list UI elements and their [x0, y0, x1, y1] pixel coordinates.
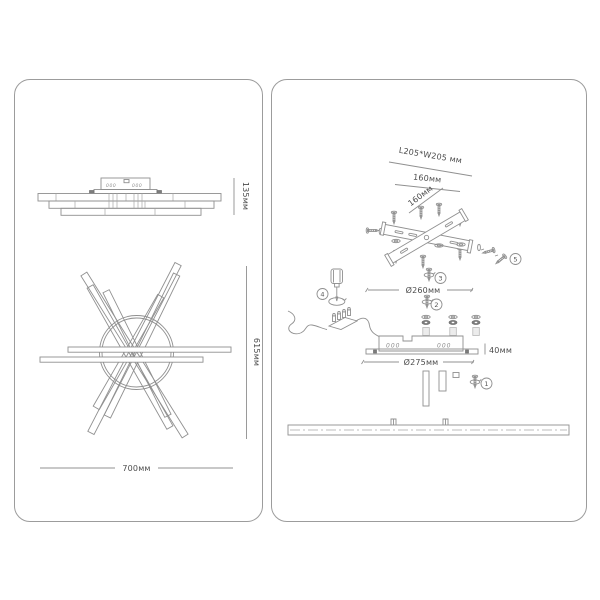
dim-label-plate: L205*W205 мм — [398, 146, 463, 166]
step-number-1: 1 — [484, 380, 488, 388]
side-vents-right: 000 — [132, 183, 142, 189]
mount-plate-side — [94, 190, 157, 194]
screw-step1-icon — [470, 375, 481, 388]
step-number-5: 5 — [513, 255, 517, 263]
rods-drawing: 1 — [288, 371, 569, 435]
dim-label-40: 40мм — [489, 346, 512, 355]
bracket-dimensions: L205*W205 мм 160мм 160мм — [389, 146, 472, 213]
screwdriver-icon — [329, 269, 347, 305]
rod-short — [439, 371, 446, 391]
top-view-drawing: 615мм 700мм — [40, 262, 261, 473]
step-number-2: 2 — [434, 301, 438, 309]
assembly-panel: L205*W205 мм 160мм 160мм — [271, 79, 587, 522]
canopy-drawing: 2 000 000 40мм Ø275мм — [362, 295, 513, 367]
bar-row-2-seams — [75, 201, 185, 208]
dimensions-drawing: 000 000 135мм — [15, 80, 262, 521]
side-screw-right-group — [478, 244, 508, 265]
dim-label-260: Ø260мм — [406, 285, 441, 295]
bar-row-3-seams — [105, 208, 155, 215]
profile-tab-right — [443, 419, 448, 425]
step-number-4: 4 — [320, 290, 324, 298]
studs-row — [423, 328, 480, 336]
bar-row-2 — [49, 201, 214, 208]
bracket-bar-b — [384, 209, 469, 267]
bar-row-1 — [38, 194, 221, 202]
dim-260: Ø260мм — [366, 285, 474, 295]
side-vents-left: 000 — [106, 183, 116, 189]
base-clip-left — [374, 350, 377, 353]
wire-left — [288, 311, 327, 334]
side-view-drawing: 000 000 135мм — [38, 178, 250, 215]
bar-row-1-seams — [56, 194, 173, 202]
dim-label-615: 615мм — [252, 338, 261, 366]
wiring-drawing: 4 — [288, 269, 379, 337]
assembly-drawing: L205*W205 мм 160мм 160мм — [272, 80, 586, 521]
driver-box-connector — [124, 180, 129, 183]
dim-label-135: 135мм — [241, 182, 250, 210]
rod-cap — [453, 373, 459, 378]
profile-tab-left — [391, 419, 396, 425]
dim-label-700: 700мм — [122, 464, 150, 473]
washers-row — [422, 315, 480, 318]
dimensions-panel: 000 000 135мм — [14, 79, 263, 522]
rod-long — [423, 371, 429, 406]
dim-label-275: Ø275мм — [404, 357, 439, 367]
terminal-block — [329, 308, 357, 330]
horizontal-stick-2 — [40, 357, 203, 362]
canopy-vents-left: 000 — [386, 343, 400, 350]
side-screw-left — [366, 228, 382, 235]
base-clip-right — [466, 350, 469, 353]
canopy-vents-right: 000 — [437, 343, 451, 350]
nuts-row — [422, 321, 480, 325]
dim-label-160h: 160мм — [413, 173, 442, 185]
wire-right — [356, 318, 379, 336]
bar-row-3 — [61, 208, 201, 215]
screw-step3-icon — [424, 268, 435, 281]
step-number-3: 3 — [438, 274, 442, 282]
horizontal-stick-1 — [68, 347, 231, 352]
